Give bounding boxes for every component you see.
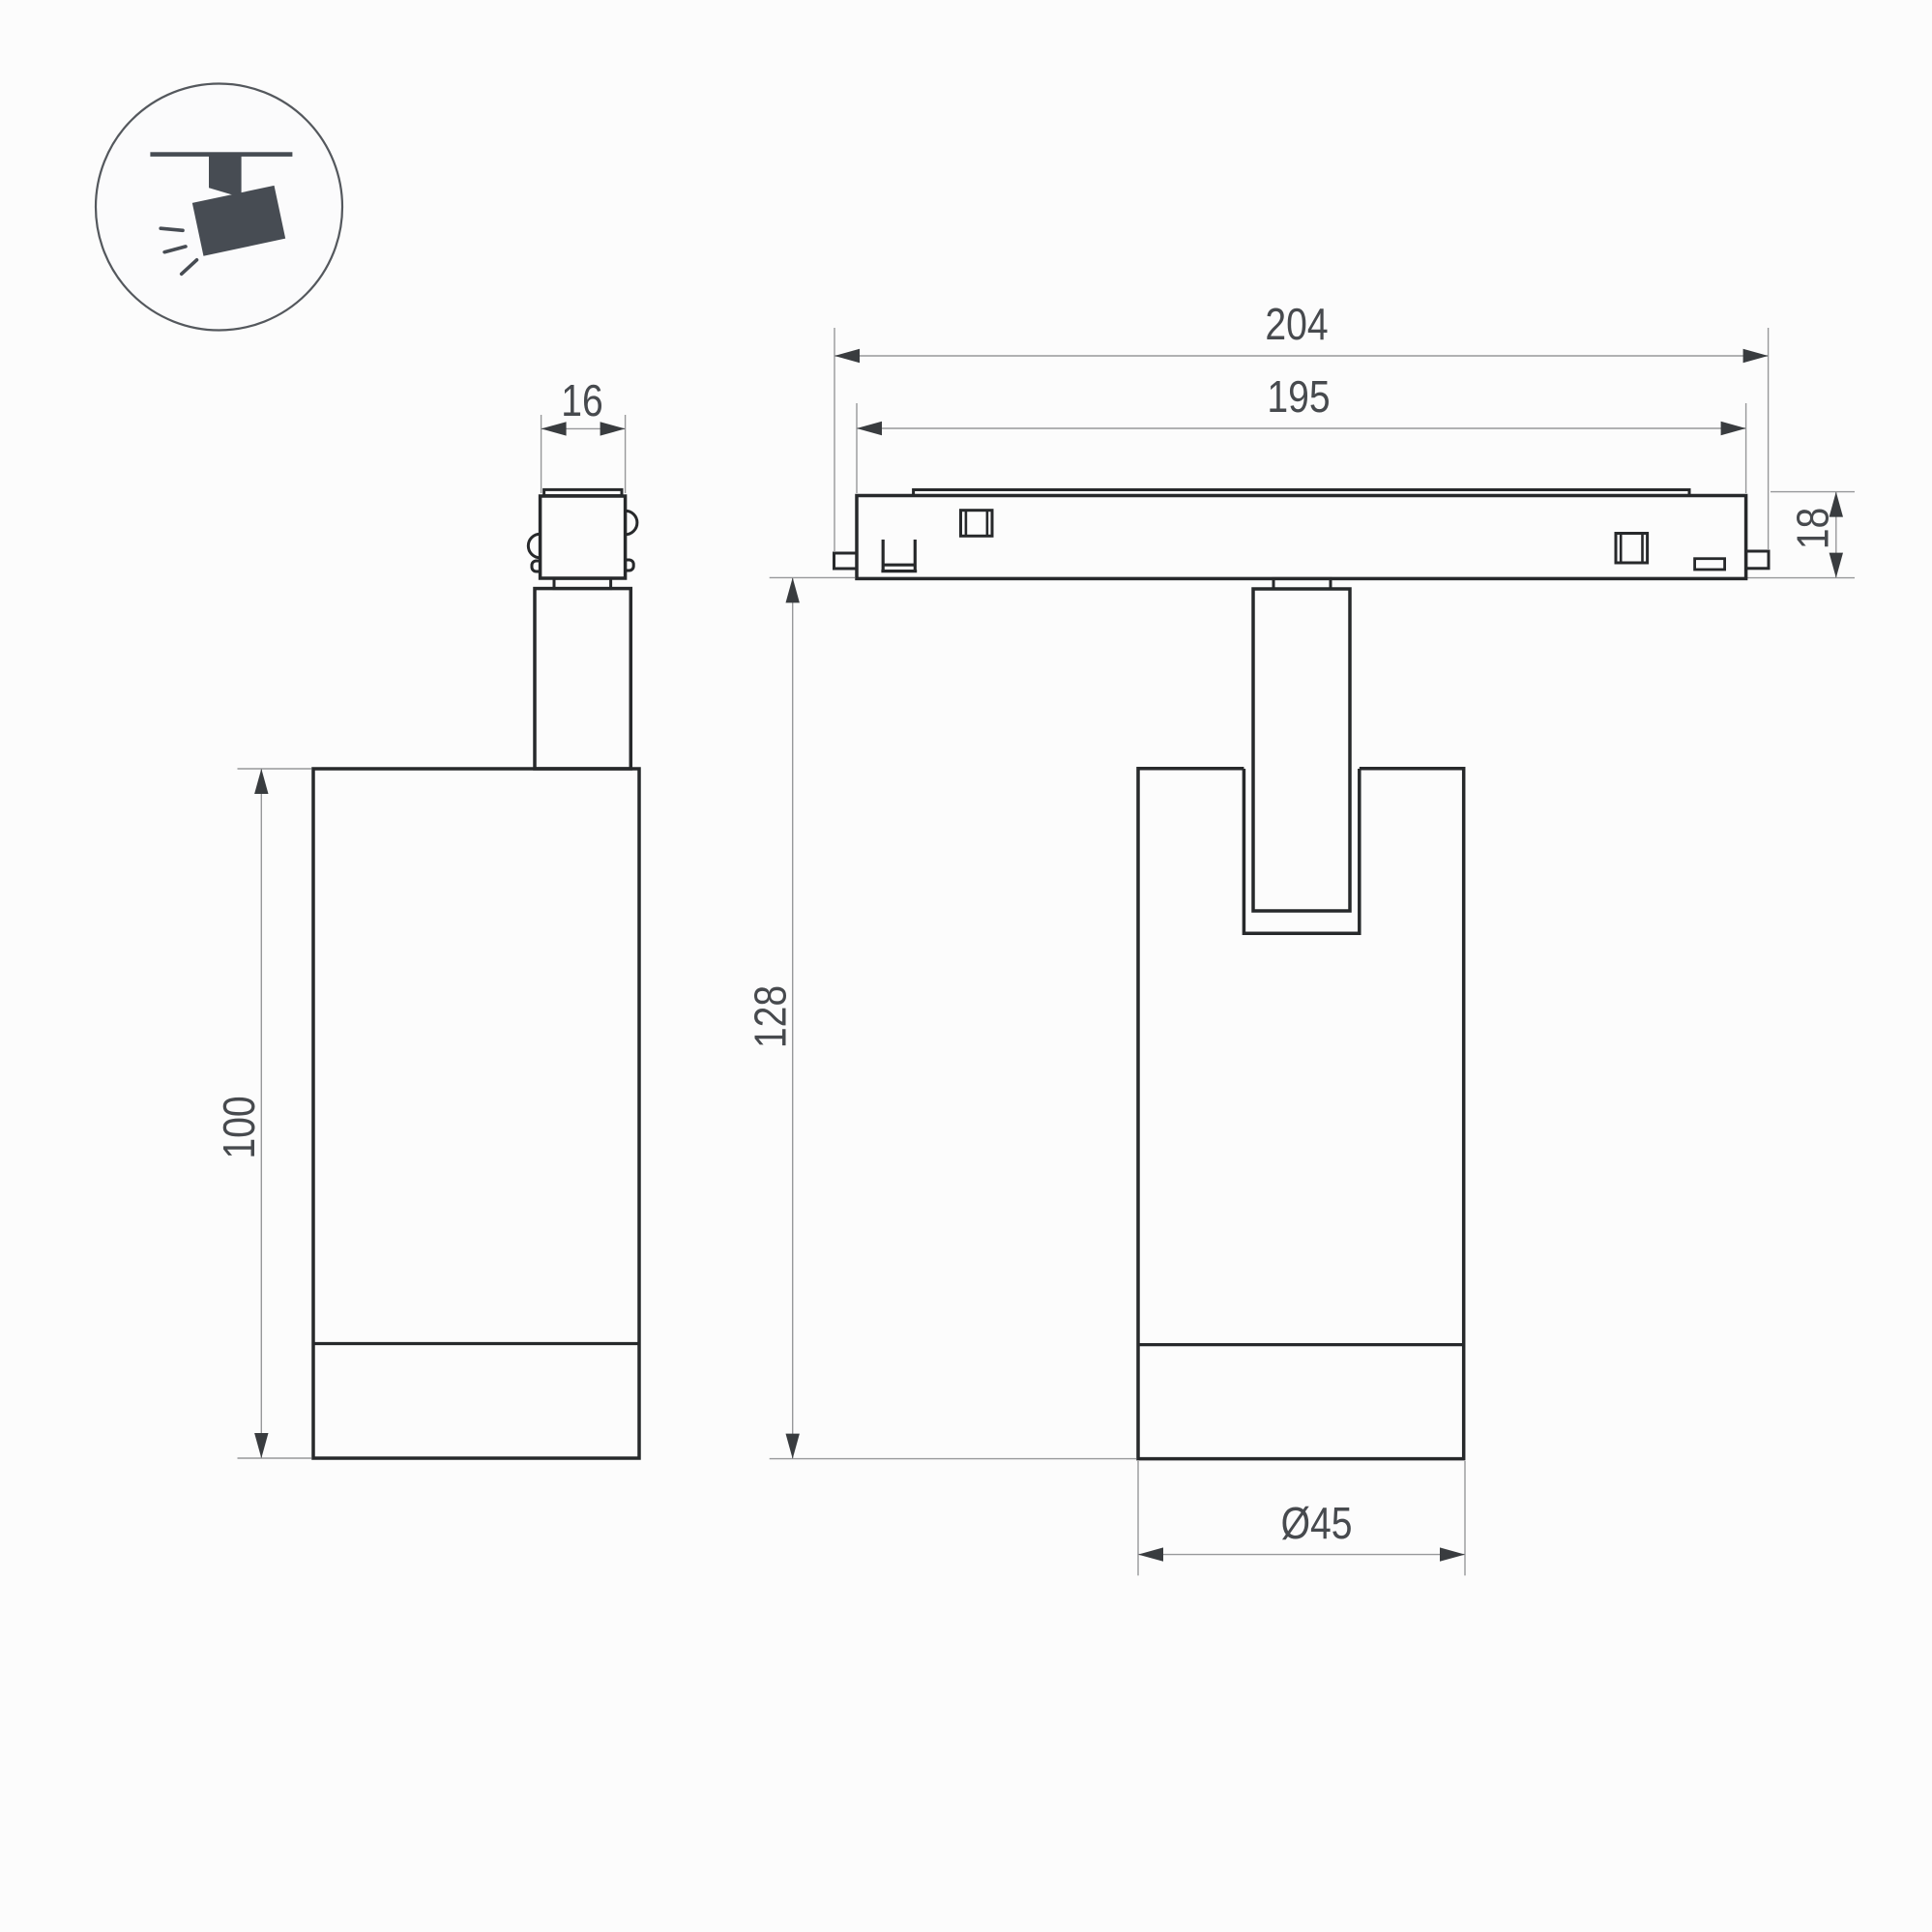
svg-text:195: 195 — [1267, 372, 1330, 423]
svg-text:100: 100 — [215, 1096, 265, 1158]
svg-text:Ø45: Ø45 — [1281, 1499, 1353, 1549]
svg-text:16: 16 — [561, 376, 602, 426]
svg-text:204: 204 — [1265, 300, 1328, 350]
svg-text:18: 18 — [1789, 508, 1839, 549]
svg-text:128: 128 — [746, 985, 797, 1048]
